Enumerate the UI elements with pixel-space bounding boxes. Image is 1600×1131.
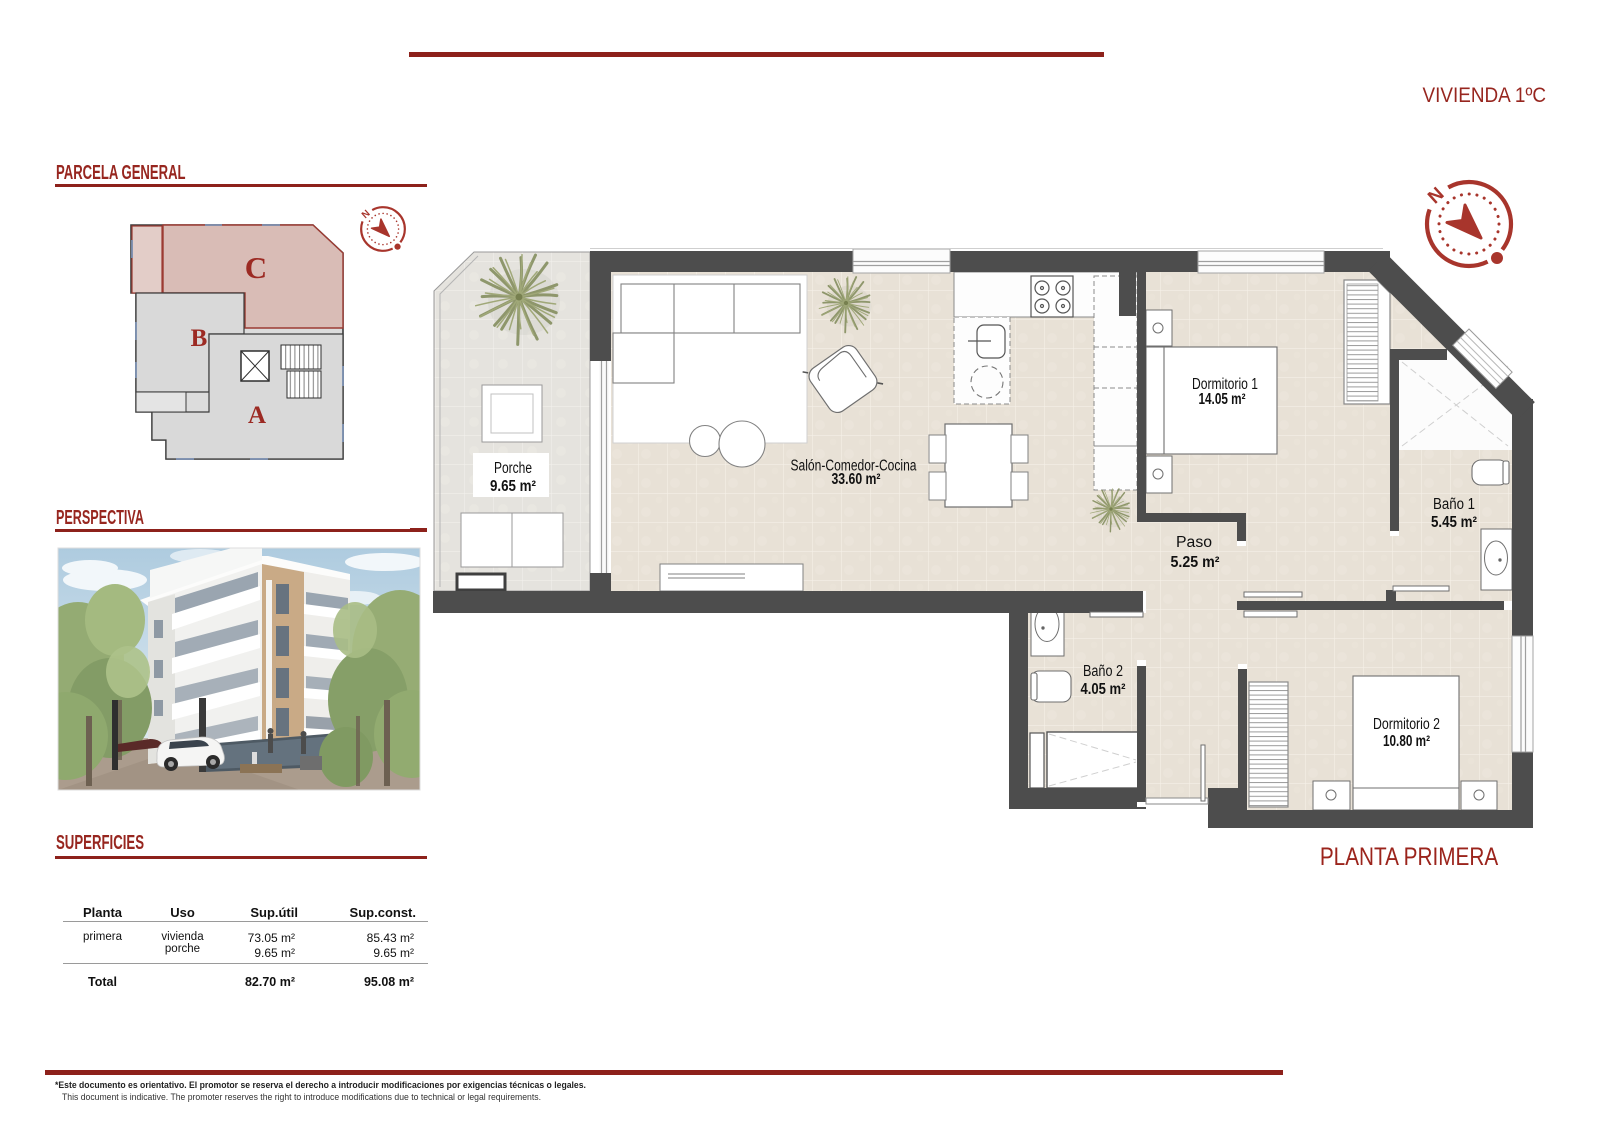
svg-text:C: C — [245, 250, 267, 285]
svg-text:10.80 m²: 10.80 m² — [1383, 733, 1430, 750]
svg-text:A: A — [248, 402, 266, 429]
svg-text:9.65 m²: 9.65 m² — [490, 478, 536, 495]
svg-text:Baño 2: Baño 2 — [1083, 663, 1123, 680]
svg-text:33.60 m²: 33.60 m² — [832, 471, 881, 488]
svg-text:Dormitorio 2: Dormitorio 2 — [1373, 716, 1440, 733]
svg-text:5.45 m²: 5.45 m² — [1431, 514, 1477, 531]
svg-text:Baño 1: Baño 1 — [1433, 496, 1475, 513]
svg-text:5.25 m²: 5.25 m² — [1171, 554, 1220, 571]
svg-text:B: B — [191, 325, 208, 352]
svg-text:4.05 m²: 4.05 m² — [1081, 681, 1126, 698]
svg-text:14.05 m²: 14.05 m² — [1199, 391, 1246, 408]
svg-text:Porche: Porche — [494, 460, 532, 477]
svg-text:Paso: Paso — [1176, 534, 1212, 551]
